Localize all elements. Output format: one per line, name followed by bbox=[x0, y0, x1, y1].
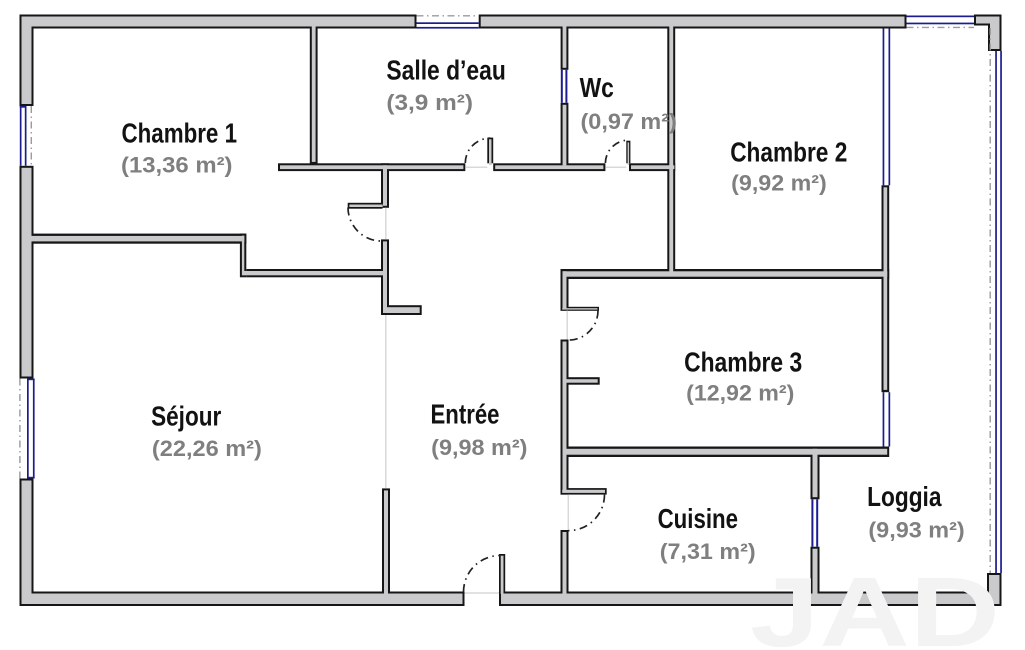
svg-text:(12,92 m²): (12,92 m²) bbox=[686, 381, 794, 406]
svg-text:Wc: Wc bbox=[580, 72, 614, 103]
svg-text:(0,97 m²): (0,97 m²) bbox=[581, 109, 677, 134]
svg-text:Salle d’eau: Salle d’eau bbox=[386, 55, 505, 86]
svg-text:(9,92 m²): (9,92 m²) bbox=[731, 171, 827, 196]
svg-text:(22,26 m²): (22,26 m²) bbox=[152, 436, 262, 461]
svg-text:JAD: JAD bbox=[750, 557, 1000, 650]
svg-text:Chambre 1: Chambre 1 bbox=[122, 117, 238, 148]
svg-text:Cuisine: Cuisine bbox=[658, 503, 738, 534]
svg-text:(13,36 m²): (13,36 m²) bbox=[121, 152, 233, 177]
svg-text:(7,31 m²): (7,31 m²) bbox=[660, 539, 756, 564]
svg-text:Chambre 3: Chambre 3 bbox=[684, 347, 802, 378]
svg-text:Séjour: Séjour bbox=[151, 400, 221, 431]
svg-text:(3,9 m²): (3,9 m²) bbox=[386, 90, 473, 115]
svg-text:(9,93 m²): (9,93 m²) bbox=[868, 518, 964, 543]
svg-text:(9,98 m²): (9,98 m²) bbox=[431, 435, 527, 460]
svg-text:Loggia: Loggia bbox=[867, 481, 942, 512]
svg-text:Chambre 2: Chambre 2 bbox=[730, 137, 847, 168]
svg-text:Entrée: Entrée bbox=[431, 399, 500, 430]
